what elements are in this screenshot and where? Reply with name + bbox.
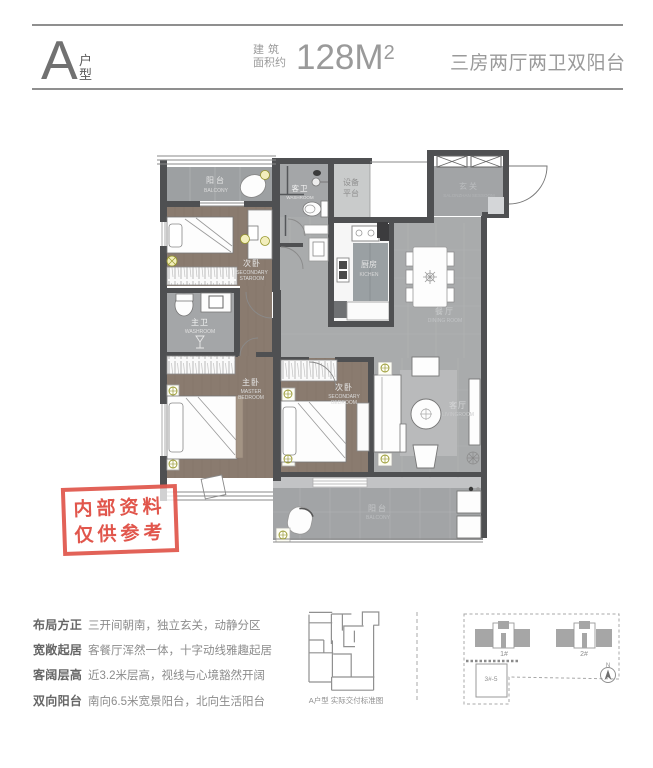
svg-text:次卧: 次卧 [243, 258, 261, 268]
svg-text:餐厅: 餐厅 [435, 307, 455, 316]
svg-text:LIVINGROOM: LIVINGROOM [442, 412, 474, 418]
svg-text:1#: 1# [500, 651, 508, 658]
svg-text:2#: 2# [580, 651, 588, 658]
svg-text:DINING ROOM: DINING ROOM [428, 318, 462, 324]
svg-text:次卧: 次卧 [335, 382, 353, 392]
svg-text:SALONZHAN SESSOOM: SALONZHAN SESSOOM [443, 193, 495, 198]
svg-text:平台: 平台 [343, 188, 359, 198]
svg-text:WASHROOM: WASHROOM [185, 329, 215, 335]
svg-text:BALCONY: BALCONY [366, 515, 391, 521]
svg-text:3#-5: 3#-5 [484, 676, 497, 683]
svg-text:BEDROOM: BEDROOM [331, 400, 357, 406]
svg-text:仅供参考: 仅供参考 [73, 520, 167, 546]
svg-text:厨房: 厨房 [361, 259, 377, 269]
svg-text:WASHROOM: WASHROOM [286, 195, 314, 200]
svg-text:内部资料: 内部资料 [73, 494, 166, 520]
svg-text:STAROOM: STAROOM [240, 276, 265, 282]
svg-text:阳台: 阳台 [206, 175, 226, 185]
svg-text:设备: 设备 [343, 177, 359, 187]
svg-text:阳台: 阳台 [368, 503, 388, 513]
svg-text:N: N [606, 663, 610, 669]
svg-text:主卫: 主卫 [191, 317, 209, 327]
svg-text:KICHEN: KICHEN [360, 272, 379, 278]
svg-text:客厅: 客厅 [449, 400, 467, 410]
svg-text:BEDROOM: BEDROOM [238, 395, 264, 401]
svg-text:BALCONY: BALCONY [204, 188, 229, 194]
svg-text:客卫: 客卫 [292, 183, 309, 193]
svg-text:A户型 实际交付标准图: A户型 实际交付标准图 [309, 695, 384, 705]
svg-text:玄关: 玄关 [459, 181, 479, 191]
svg-text:主卧: 主卧 [242, 377, 260, 387]
